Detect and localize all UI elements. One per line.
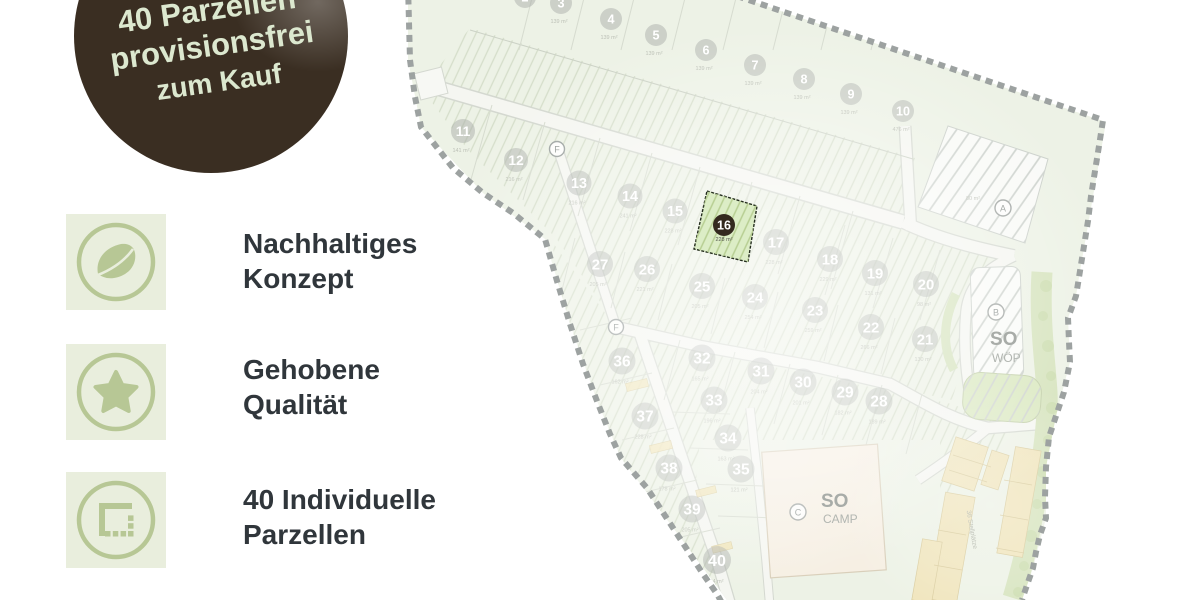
svg-text:WÖP: WÖP xyxy=(992,351,1021,365)
svg-text:139 m²: 139 m² xyxy=(600,35,617,41)
svg-text:11: 11 xyxy=(456,124,471,139)
svg-text:141 m²: 141 m² xyxy=(452,148,469,154)
svg-text:CAMP: CAMP xyxy=(823,512,858,526)
svg-text:SO: SO xyxy=(821,491,848,512)
svg-text:4: 4 xyxy=(607,13,614,27)
svg-text:SO: SO xyxy=(990,329,1017,350)
svg-text:3: 3 xyxy=(557,0,564,11)
svg-text:139 m²: 139 m² xyxy=(550,19,567,25)
svg-text:16: 16 xyxy=(717,219,731,233)
svg-text:228 m²: 228 m² xyxy=(715,237,732,243)
svg-text:2: 2 xyxy=(521,0,528,5)
